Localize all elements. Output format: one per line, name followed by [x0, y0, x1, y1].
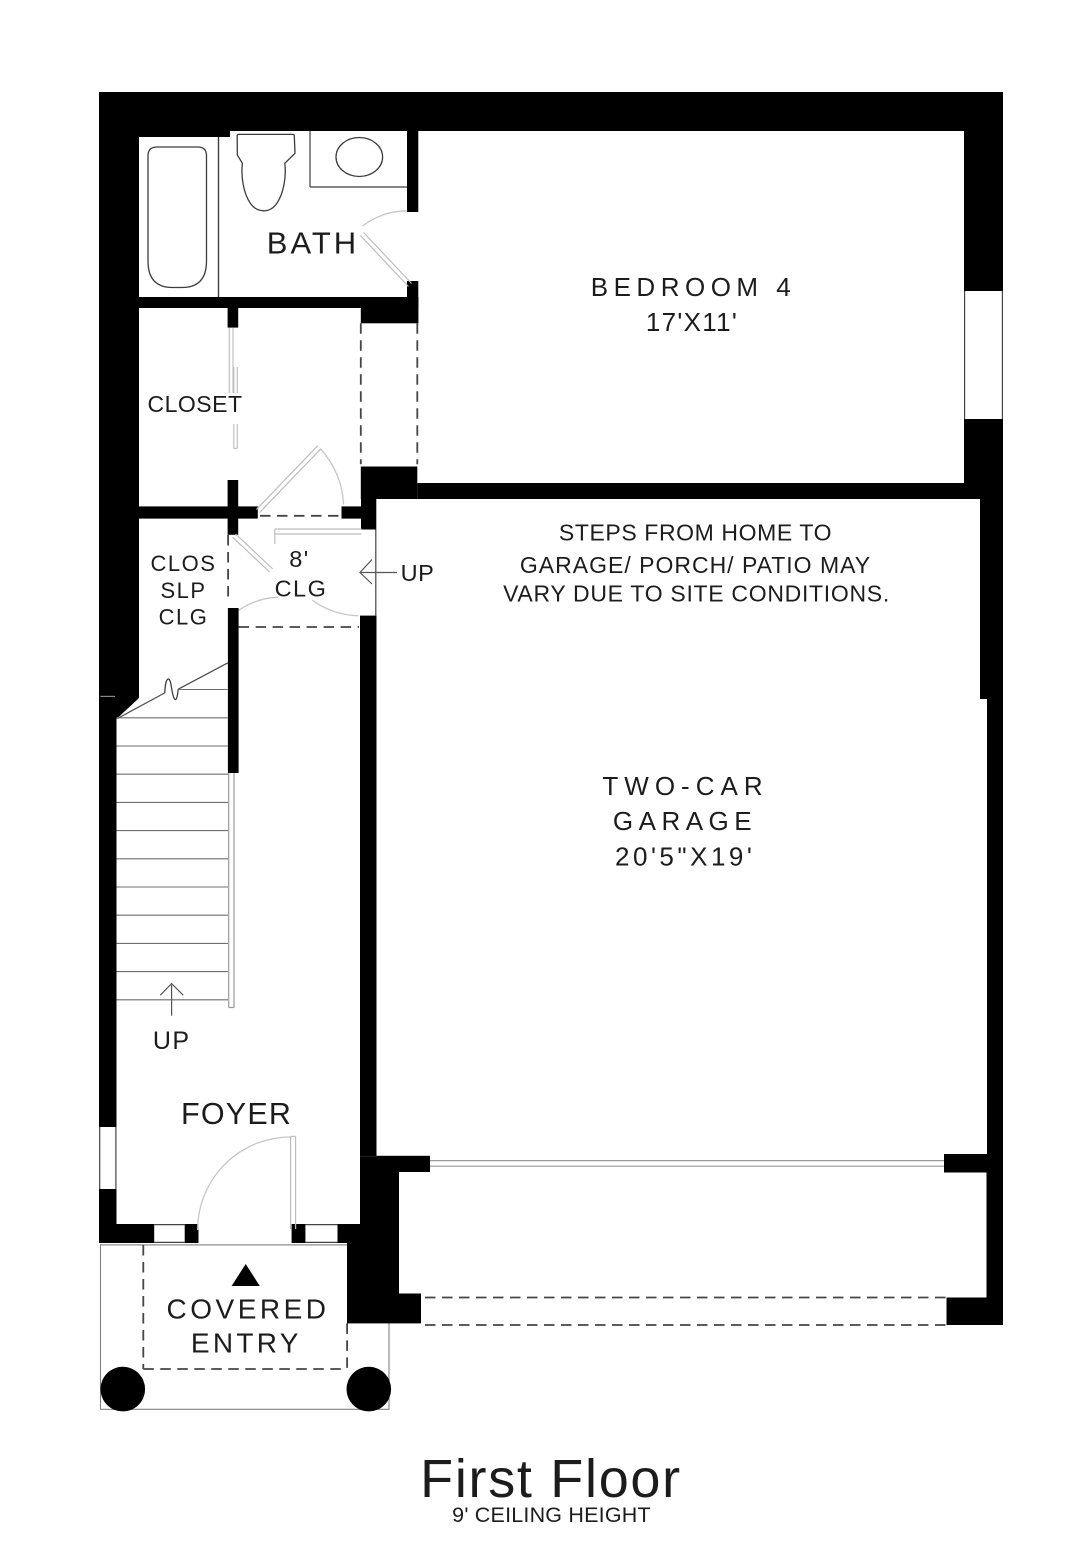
svg-text:CLOSET: CLOSET [147, 391, 242, 417]
svg-text:CLG: CLG [275, 575, 328, 601]
svg-text:STEPS FROM HOME TO: STEPS FROM HOME TO [559, 520, 832, 546]
svg-text:BATH: BATH [267, 226, 359, 261]
svg-text:GARAGE/ PORCH/ PATIO MAY: GARAGE/ PORCH/ PATIO MAY [520, 552, 871, 578]
svg-text:VARY DUE TO SITE CONDITIONS.: VARY DUE TO SITE CONDITIONS. [503, 580, 890, 606]
svg-text:GARAGE: GARAGE [613, 806, 757, 836]
svg-text:20'5"X19': 20'5"X19' [615, 842, 755, 872]
svg-text:UP: UP [153, 1027, 191, 1055]
svg-text:SLP: SLP [160, 578, 206, 603]
svg-text:CLOS: CLOS [151, 551, 217, 576]
svg-text:UP: UP [401, 560, 435, 586]
svg-text:First Floor: First Floor [420, 1449, 682, 1509]
svg-text:BEDROOM 4: BEDROOM 4 [591, 272, 797, 302]
svg-text:COVERED: COVERED [167, 1293, 330, 1324]
svg-text:ENTRY: ENTRY [191, 1328, 302, 1359]
svg-text:TWO-CAR: TWO-CAR [602, 771, 768, 801]
svg-text:CLG: CLG [159, 604, 209, 629]
svg-text:17'X11': 17'X11' [646, 307, 738, 337]
svg-text:9' CEILING HEIGHT: 9' CEILING HEIGHT [452, 1503, 651, 1527]
svg-text:FOYER: FOYER [181, 1097, 292, 1131]
svg-text:8': 8' [289, 546, 310, 572]
